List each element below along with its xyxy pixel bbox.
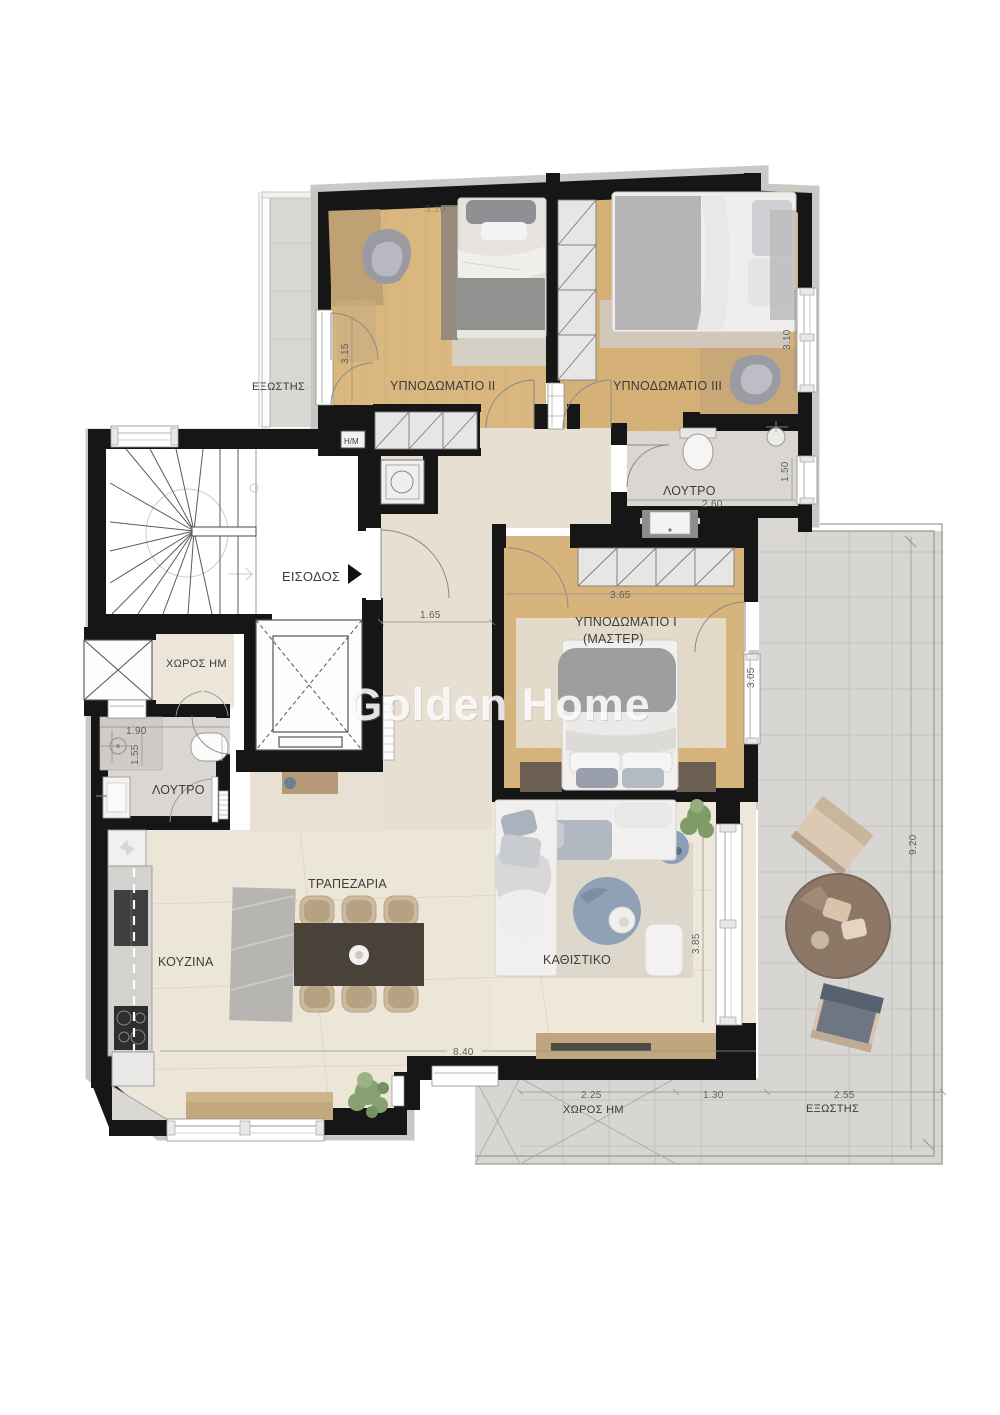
svg-text:ΤΡΑΠΕΖΑΡΙΑ: ΤΡΑΠΕΖΑΡΙΑ (308, 877, 387, 891)
svg-text:ΥΠΝΟΔΩΜΑΤΙΟ I: ΥΠΝΟΔΩΜΑΤΙΟ I (575, 615, 677, 629)
svg-text:3.65: 3.65 (610, 590, 631, 601)
svg-text:ΚΟΥΖΙΝΑ: ΚΟΥΖΙΝΑ (158, 955, 214, 969)
svg-text:3.10: 3.10 (782, 329, 793, 350)
svg-text:1.30: 1.30 (703, 1090, 724, 1101)
svg-text:(ΜΑΣΤΕΡ): (ΜΑΣΤΕΡ) (583, 632, 644, 646)
svg-text:ΕΞΩΣΤΗΣ: ΕΞΩΣΤΗΣ (806, 1103, 859, 1115)
svg-text:ΧΩΡΟΣ ΗΜ: ΧΩΡΟΣ ΗΜ (166, 658, 227, 670)
svg-text:1.50: 1.50 (780, 461, 791, 482)
svg-text:1.65: 1.65 (420, 610, 441, 621)
svg-text:ΛΟΥΤΡΟ: ΛΟΥΤΡΟ (152, 783, 205, 797)
svg-text:3.85: 3.85 (691, 933, 702, 954)
svg-text:3.05: 3.05 (746, 667, 757, 688)
svg-text:8.40: 8.40 (453, 1047, 474, 1058)
svg-text:3.15: 3.15 (340, 343, 351, 364)
svg-text:ΛΟΥΤΡΟ: ΛΟΥΤΡΟ (663, 484, 716, 498)
svg-text:3.20: 3.20 (425, 204, 446, 215)
svg-text:1.90: 1.90 (126, 726, 147, 737)
svg-text:2.25: 2.25 (581, 1090, 602, 1101)
svg-text:Golden Home: Golden Home (347, 679, 651, 730)
svg-text:ΥΠΝΟΔΩΜΑΤΙΟ III: ΥΠΝΟΔΩΜΑΤΙΟ III (613, 379, 722, 393)
svg-text:ΥΠΝΟΔΩΜΑΤΙΟ II: ΥΠΝΟΔΩΜΑΤΙΟ II (390, 379, 495, 393)
svg-text:ΚΑΘΙΣΤΙΚΟ: ΚΑΘΙΣΤΙΚΟ (543, 953, 611, 967)
svg-text:ΕΙΣΟΔΟΣ: ΕΙΣΟΔΟΣ (282, 569, 340, 584)
svg-text:ΧΩΡΟΣ ΗΜ: ΧΩΡΟΣ ΗΜ (563, 1104, 624, 1116)
svg-text:ΕΞΩΣΤΗΣ: ΕΞΩΣΤΗΣ (252, 381, 305, 393)
svg-text:2.55: 2.55 (834, 1090, 855, 1101)
svg-text:9.20: 9.20 (908, 834, 919, 855)
svg-text:1.55: 1.55 (130, 744, 141, 765)
svg-text:Η/Μ: Η/Μ (344, 437, 359, 446)
svg-text:2.60: 2.60 (702, 499, 723, 510)
